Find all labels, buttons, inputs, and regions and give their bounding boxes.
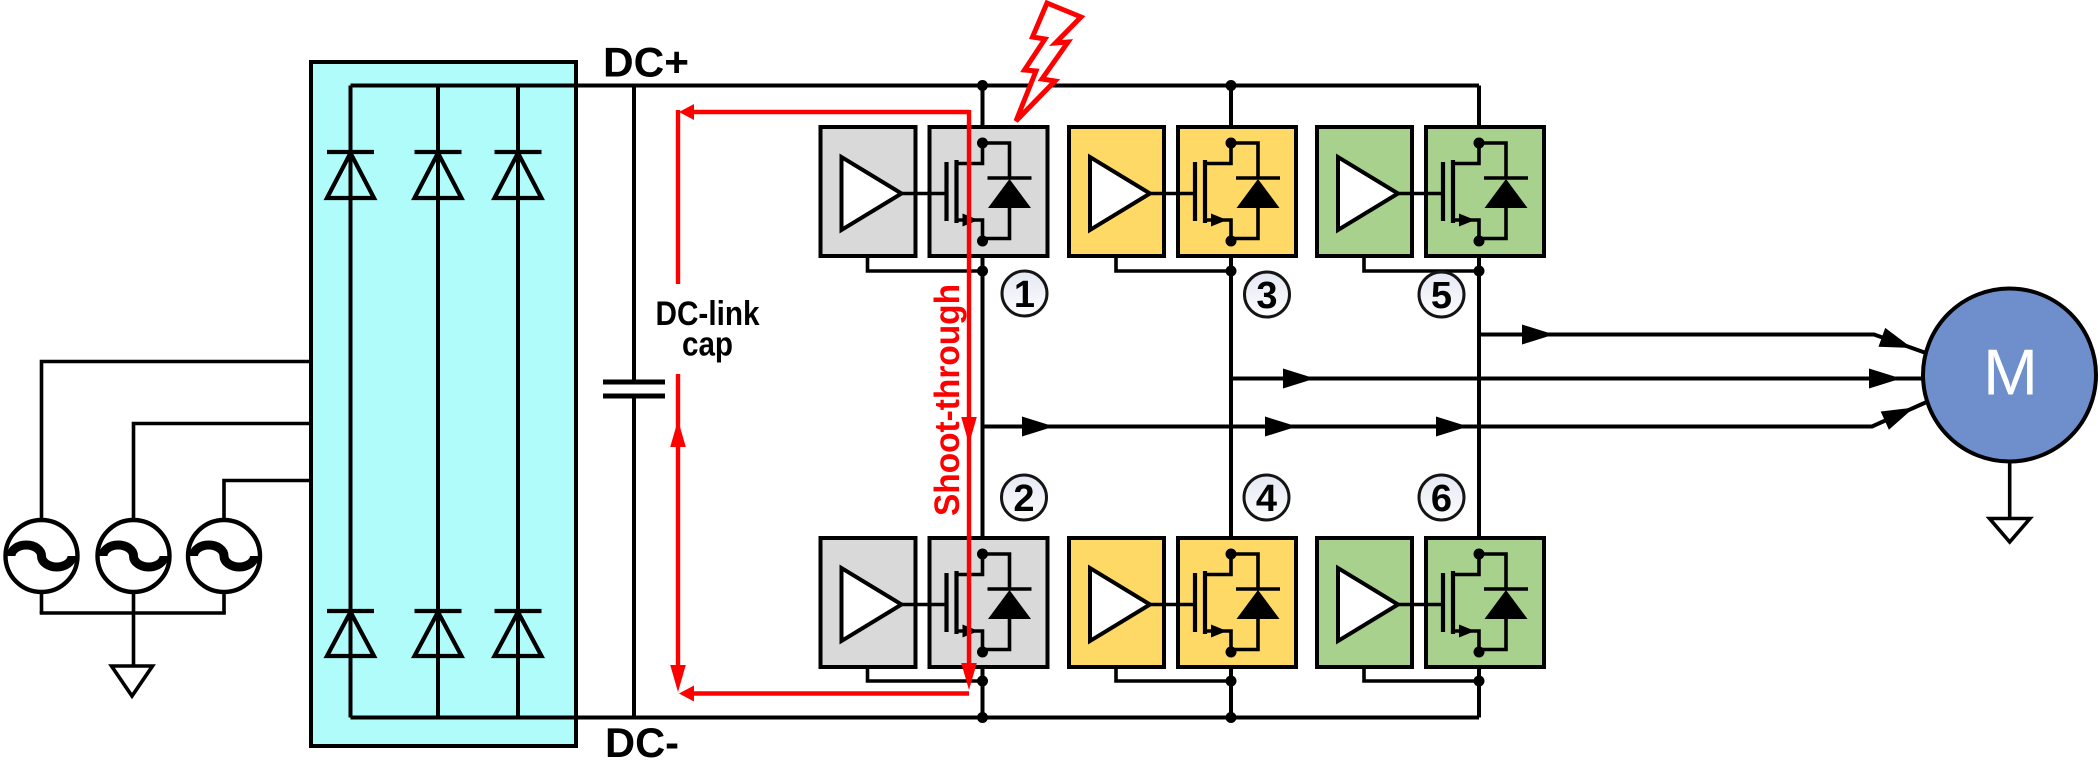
svg-text:Shoot-through: Shoot-through — [928, 284, 967, 516]
svg-text:1: 1 — [1014, 274, 1035, 316]
svg-text:5: 5 — [1431, 275, 1452, 317]
svg-text:M: M — [1983, 336, 2038, 409]
svg-text:DC-: DC- — [605, 719, 679, 766]
svg-text:cap: cap — [682, 326, 733, 364]
svg-text:DC+: DC+ — [603, 39, 689, 86]
svg-text:3: 3 — [1256, 275, 1277, 317]
svg-text:6: 6 — [1431, 478, 1452, 520]
svg-text:4: 4 — [1256, 478, 1277, 520]
svg-text:2: 2 — [1013, 478, 1034, 520]
